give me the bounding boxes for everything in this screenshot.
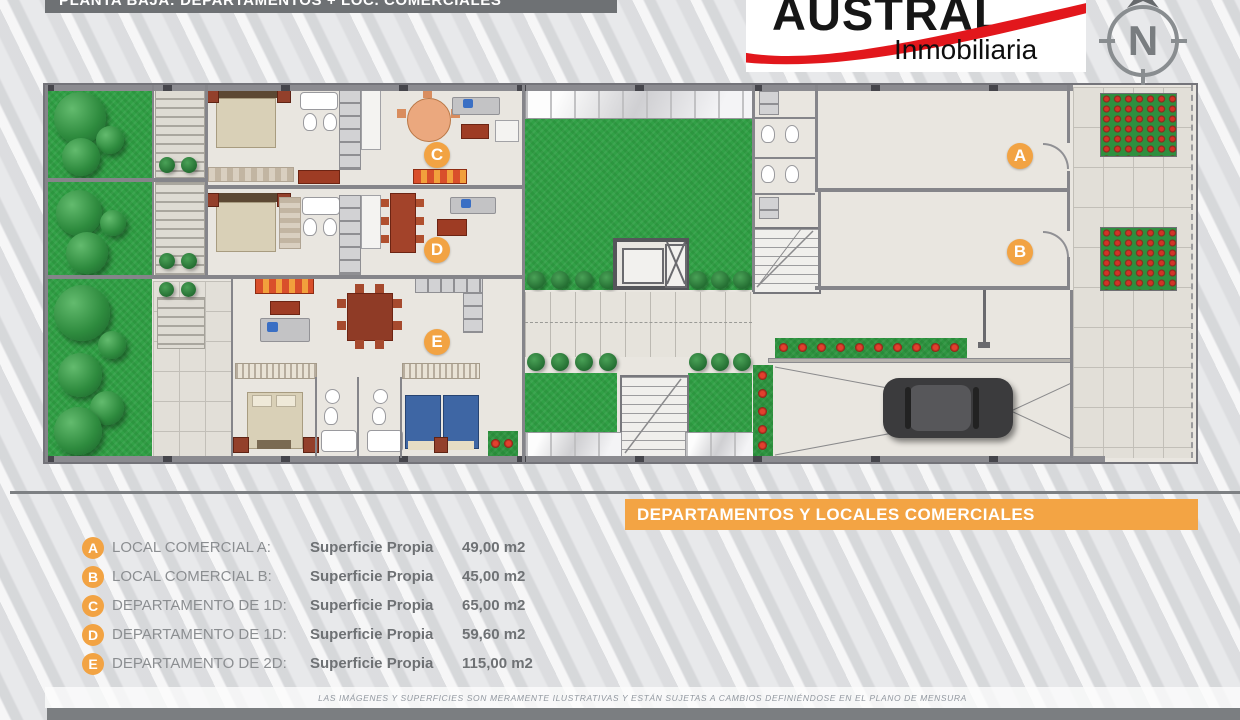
legend-row-c: C DEPARTAMENTO DE 1D: Superficie Propia … (82, 591, 533, 620)
page-title: PLANTA BAJA: DEPARTAMENTOS + LOC. COMERC… (45, 0, 617, 9)
disclaimer-text: LAS IMÁGENES Y SUPERFICIES SON MERAMENTE… (318, 693, 967, 703)
legend-label: Superficie Propia (310, 539, 462, 556)
section-divider (10, 491, 1240, 494)
legend-badge-c: C (82, 595, 104, 617)
legend-label: Superficie Propia (310, 626, 462, 643)
floor-plan: A B C D E (45, 85, 1196, 462)
legend-row-e: E DEPARTAMENTO DE 2D: Superficie Propia … (82, 649, 533, 678)
legend-name: LOCAL COMERCIAL A: (112, 539, 310, 556)
legend-name: DEPARTAMENTO DE 1D: (112, 597, 310, 614)
legend-value: 45,00 m2 (462, 568, 525, 585)
compass-letter: N (1128, 17, 1158, 64)
plan-detail-lines (45, 85, 1196, 462)
legend-value: 115,00 m2 (462, 655, 533, 672)
legend-row-b: B LOCAL COMERCIAL B: Superficie Propia 4… (82, 562, 533, 591)
legend-badge-d: D (82, 624, 104, 646)
legend-badge-e: E (82, 653, 104, 675)
logo-panel: AUSTRAL Inmobiliaria (746, 0, 1086, 72)
title-bar: PLANTA BAJA: DEPARTAMENTOS + LOC. COMERC… (45, 0, 617, 13)
legend-label: Superficie Propia (310, 655, 462, 672)
legend-badge-b: B (82, 566, 104, 588)
banner-text: DEPARTAMENTOS Y LOCALES COMERCIALES (637, 505, 1035, 524)
legend-row-d: D DEPARTAMENTO DE 1D: Superficie Propia … (82, 620, 533, 649)
legend-badge-a: A (82, 537, 104, 559)
legend-row-a: A LOCAL COMERCIAL A: Superficie Propia 4… (82, 533, 533, 562)
legend-name: DEPARTAMENTO DE 1D: (112, 626, 310, 643)
bottom-bar (47, 708, 1240, 720)
logo-subtitle: Inmobiliaria (894, 34, 1037, 66)
legend-value: 59,60 m2 (462, 626, 525, 643)
legend-label: Superficie Propia (310, 597, 462, 614)
legend-value: 49,00 m2 (462, 539, 525, 556)
disclaimer-strip: LAS IMÁGENES Y SUPERFICIES SON MERAMENTE… (45, 687, 1240, 708)
legend-value: 65,00 m2 (462, 597, 525, 614)
compass-north-icon: N (1088, 0, 1198, 86)
section-banner: DEPARTAMENTOS Y LOCALES COMERCIALES (625, 499, 1198, 530)
legend-name: DEPARTAMENTO DE 2D: (112, 655, 310, 672)
legend-name: LOCAL COMERCIAL B: (112, 568, 310, 585)
legend: A LOCAL COMERCIAL A: Superficie Propia 4… (82, 533, 533, 678)
legend-label: Superficie Propia (310, 568, 462, 585)
